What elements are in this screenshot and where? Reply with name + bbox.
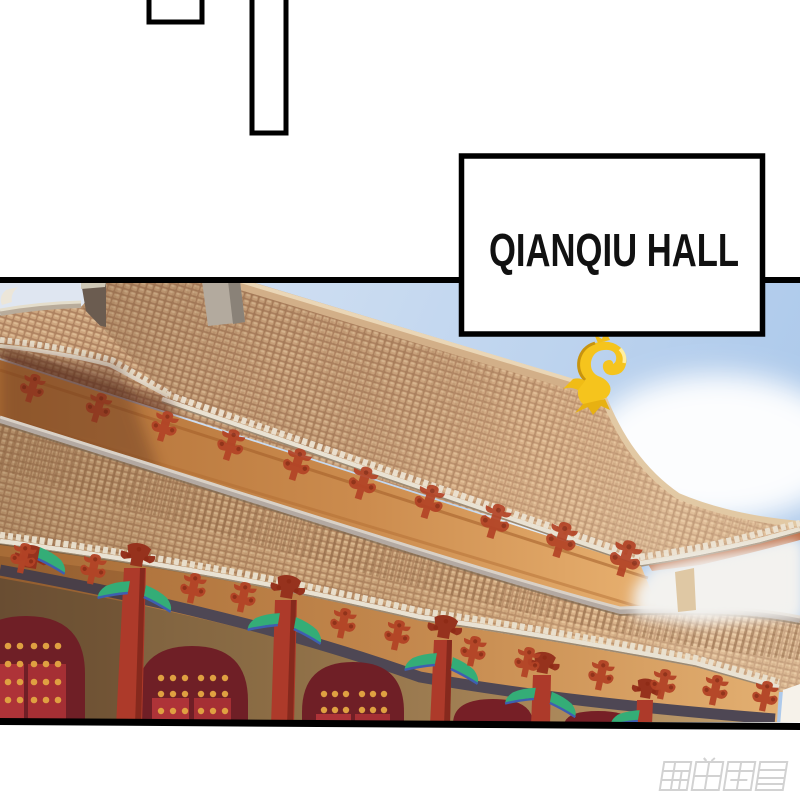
svg-text:QIANQIU HALL: QIANQIU HALL xyxy=(489,224,739,276)
